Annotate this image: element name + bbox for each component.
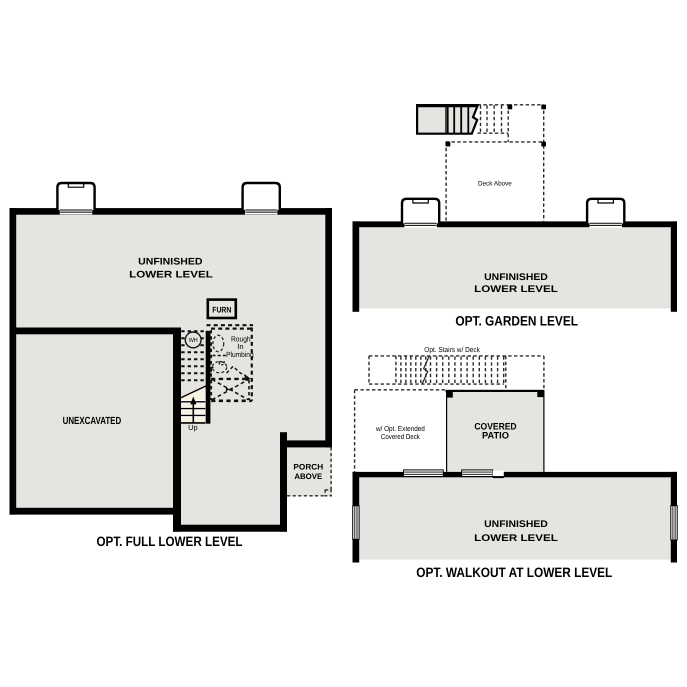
svg-text:UNFINISHED: UNFINISHED bbox=[484, 272, 548, 283]
svg-text:PORCH: PORCH bbox=[293, 463, 323, 472]
svg-text:UNFINISHED: UNFINISHED bbox=[138, 257, 202, 268]
svg-text:Deck Above: Deck Above bbox=[478, 180, 512, 187]
svg-text:PATIO: PATIO bbox=[482, 429, 509, 440]
svg-text:LOWER LEVEL: LOWER LEVEL bbox=[474, 284, 558, 295]
svg-text:ABOVE: ABOVE bbox=[294, 472, 323, 481]
svg-text:Covered Deck: Covered Deck bbox=[381, 432, 420, 441]
svg-text:OPT. GARDEN LEVEL: OPT. GARDEN LEVEL bbox=[455, 313, 578, 328]
svg-text:Up: Up bbox=[188, 423, 198, 432]
svg-text:LOWER LEVEL: LOWER LEVEL bbox=[129, 270, 213, 281]
svg-text:Opt. Stairs w/ Deck: Opt. Stairs w/ Deck bbox=[424, 345, 480, 354]
svg-text:OPT. WALKOUT AT LOWER LEVEL: OPT. WALKOUT AT LOWER LEVEL bbox=[416, 565, 612, 580]
svg-text:FURN: FURN bbox=[212, 306, 231, 315]
svg-text:WH: WH bbox=[189, 337, 198, 344]
svg-text:Plumbing: Plumbing bbox=[226, 350, 254, 359]
svg-text:OPT. FULL LOWER LEVEL: OPT. FULL LOWER LEVEL bbox=[97, 534, 243, 549]
svg-text:UNFINISHED: UNFINISHED bbox=[484, 519, 548, 530]
svg-text:LOWER LEVEL: LOWER LEVEL bbox=[474, 533, 558, 544]
svg-text:UNEXCAVATED: UNEXCAVATED bbox=[63, 416, 122, 427]
